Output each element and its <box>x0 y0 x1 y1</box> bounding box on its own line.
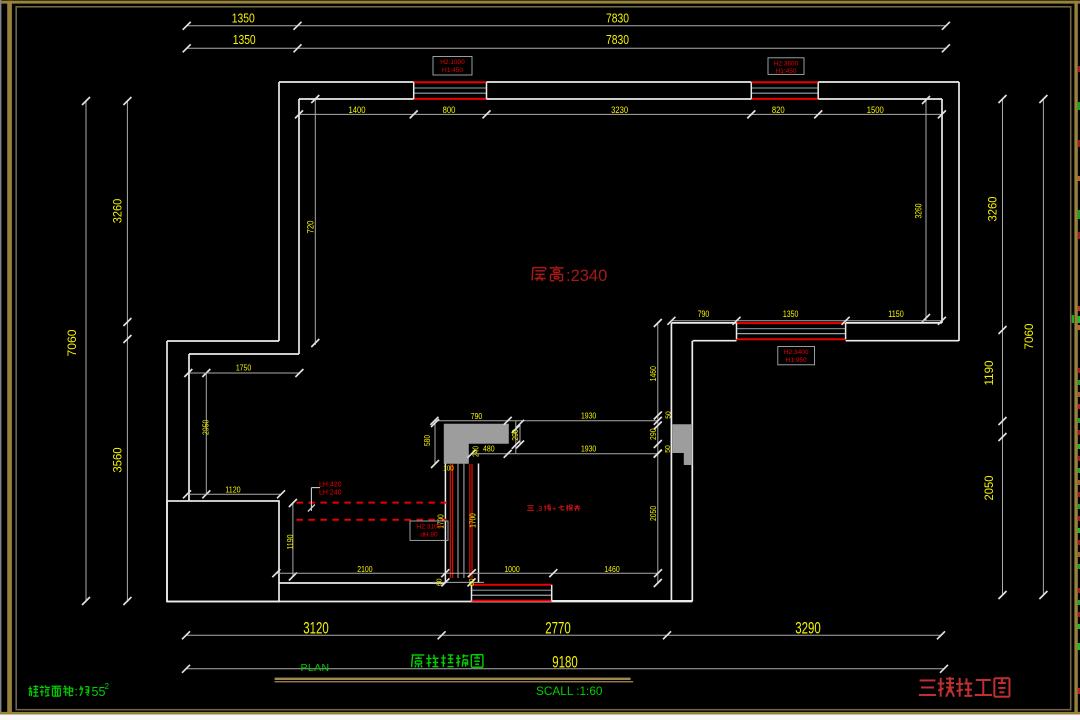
svg-text:1930: 1930 <box>581 444 596 454</box>
svg-text:H1:950: H1:950 <box>786 357 807 364</box>
svg-text:2: 2 <box>105 682 110 691</box>
svg-text:2950: 2950 <box>200 419 210 434</box>
svg-text:1350: 1350 <box>233 33 256 47</box>
svg-text:dH:80: dH:80 <box>420 531 438 538</box>
svg-text:7830: 7830 <box>606 33 629 47</box>
svg-text:1460: 1460 <box>604 564 619 574</box>
svg-text:3260: 3260 <box>986 196 1000 221</box>
svg-text::2340: :2340 <box>566 267 607 285</box>
svg-text:100: 100 <box>443 466 454 473</box>
svg-text:50: 50 <box>666 411 673 419</box>
svg-text:H2:3100: H2:3100 <box>417 524 442 531</box>
svg-text:3260: 3260 <box>914 204 924 219</box>
svg-text:9180: 9180 <box>552 654 578 672</box>
svg-text:1190: 1190 <box>285 534 295 549</box>
svg-text:290: 290 <box>510 429 520 441</box>
svg-text:LH:420: LH:420 <box>319 481 342 488</box>
svg-text:60: 60 <box>469 578 476 586</box>
svg-text:50: 50 <box>665 445 672 453</box>
svg-text:2050: 2050 <box>982 475 996 500</box>
svg-text::: : <box>75 685 78 699</box>
svg-text:1190: 1190 <box>982 360 996 385</box>
svg-text:7830: 7830 <box>606 12 629 26</box>
svg-text:1700: 1700 <box>468 513 477 528</box>
svg-text:1000: 1000 <box>504 564 519 574</box>
svg-text:H2:1000: H2:1000 <box>440 59 465 66</box>
svg-text:1150: 1150 <box>888 309 904 319</box>
svg-text:480: 480 <box>483 445 495 454</box>
svg-text:LH:240: LH:240 <box>319 490 342 497</box>
svg-text:3120: 3120 <box>303 620 329 638</box>
svg-text:2050: 2050 <box>648 506 658 521</box>
svg-text:820: 820 <box>772 105 785 115</box>
svg-text:1460: 1460 <box>648 366 658 381</box>
svg-text:580: 580 <box>423 435 432 446</box>
svg-text:800: 800 <box>443 105 456 115</box>
svg-text:,3: ,3 <box>536 504 542 513</box>
svg-text:2770: 2770 <box>545 620 571 638</box>
svg-text:1750: 1750 <box>236 363 251 373</box>
svg-text:SCALL :1:60: SCALL :1:60 <box>536 684 603 698</box>
svg-text:H1:450: H1:450 <box>776 68 797 75</box>
svg-text:3260: 3260 <box>110 198 124 223</box>
svg-text:1400: 1400 <box>349 105 366 115</box>
svg-text:720: 720 <box>306 221 316 234</box>
svg-text:790: 790 <box>471 411 483 421</box>
svg-text:H2:3400: H2:3400 <box>784 349 809 356</box>
svg-text:3290: 3290 <box>795 620 821 638</box>
svg-text:790: 790 <box>698 309 710 319</box>
svg-text:55: 55 <box>92 685 106 699</box>
svg-text:60: 60 <box>437 578 444 586</box>
svg-text:H1:450: H1:450 <box>442 67 463 74</box>
svg-text:7060: 7060 <box>1024 324 1036 350</box>
svg-text:1120: 1120 <box>225 484 240 494</box>
svg-text:3560: 3560 <box>110 447 124 473</box>
svg-text:1350: 1350 <box>783 309 799 319</box>
svg-text:PLAN: PLAN <box>301 662 330 674</box>
svg-text:290: 290 <box>648 428 658 440</box>
svg-text:H2:3600: H2:3600 <box>774 60 799 67</box>
svg-text:2100: 2100 <box>357 564 372 574</box>
svg-text:7060: 7060 <box>67 330 79 357</box>
svg-text:240: 240 <box>472 446 481 457</box>
svg-text:1350: 1350 <box>232 12 255 26</box>
svg-text:3230: 3230 <box>611 105 628 115</box>
svg-text:1500: 1500 <box>867 105 884 115</box>
svg-text:+: + <box>552 504 557 513</box>
svg-text:1930: 1930 <box>581 411 596 421</box>
